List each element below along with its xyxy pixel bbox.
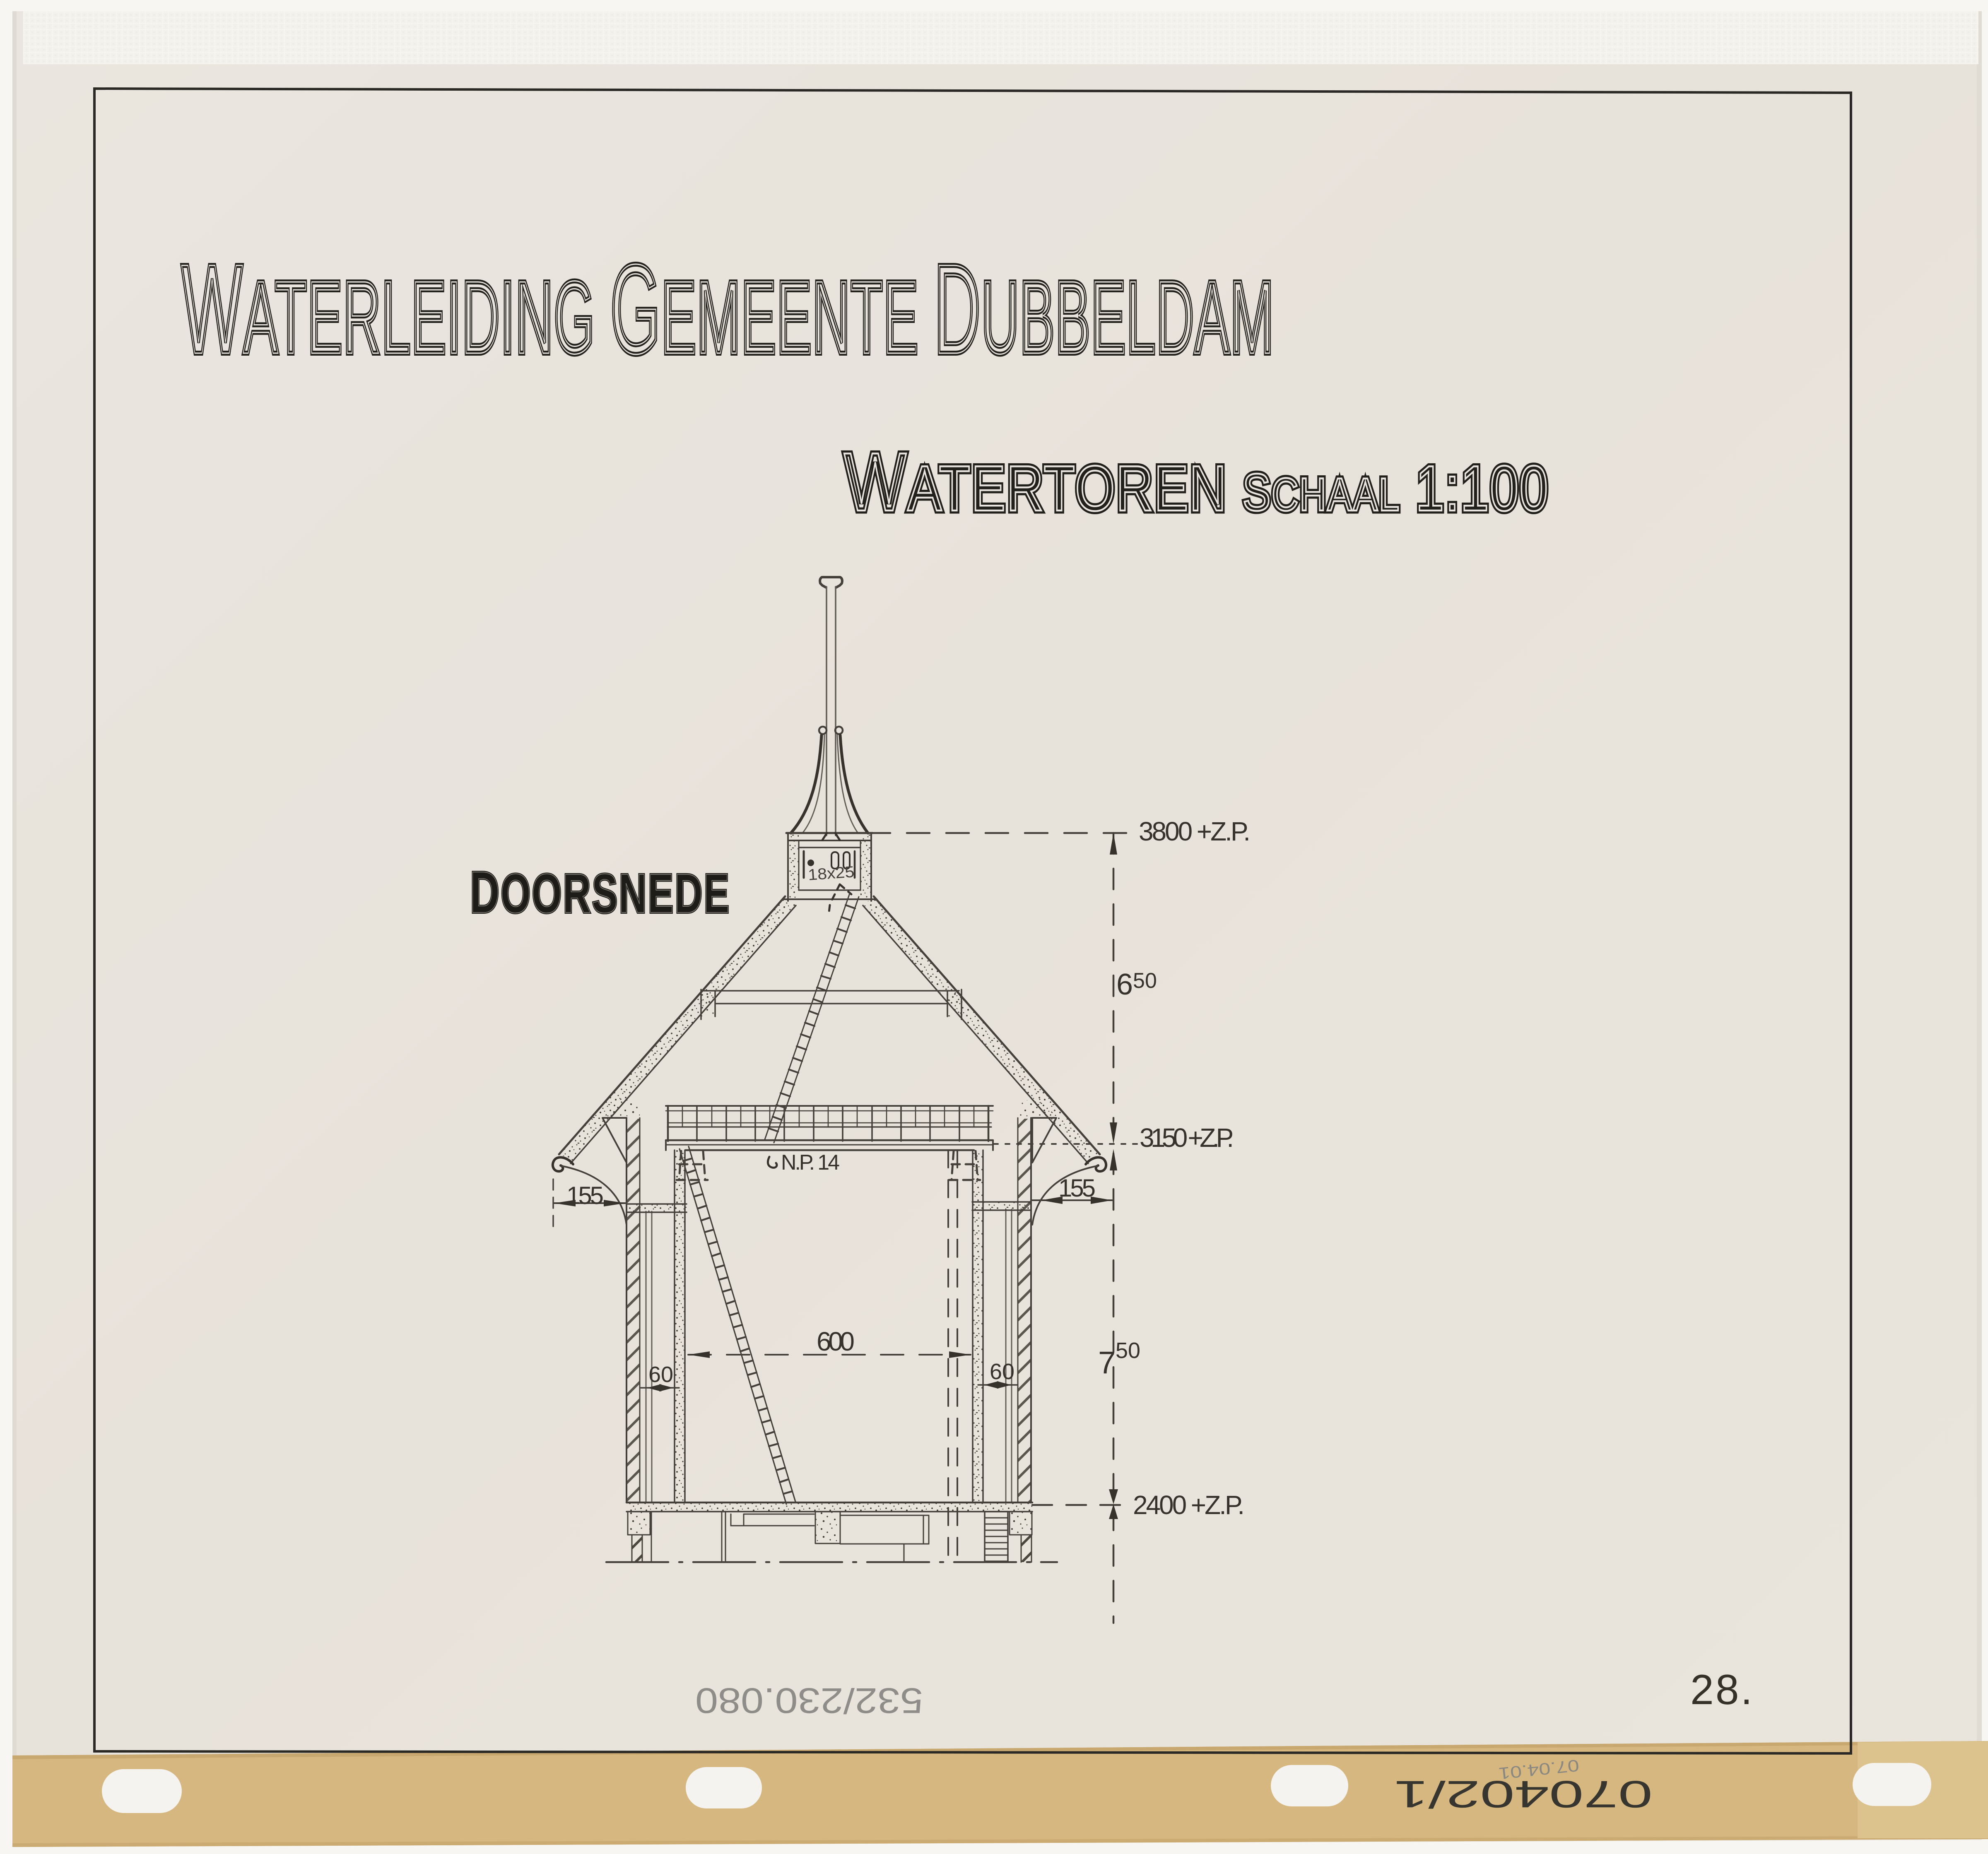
svg-text:3800 +Z.P.: 3800 +Z.P.	[1139, 816, 1251, 846]
svg-text:28.: 28.	[1690, 1666, 1752, 1713]
svg-text:7: 7	[1098, 1345, 1116, 1380]
svg-text:600: 600	[817, 1327, 855, 1356]
svg-text:155: 155	[1058, 1174, 1096, 1202]
svg-text:N.P. 14: N.P. 14	[781, 1151, 840, 1175]
svg-text:2400 +Z.P.: 2400 +Z.P.	[1133, 1490, 1245, 1520]
svg-text:155: 155	[566, 1182, 604, 1209]
svg-text:3150 +Z.P.: 3150 +Z.P.	[1140, 1123, 1234, 1153]
svg-text:18x25: 18x25	[807, 863, 855, 884]
svg-text:50: 50	[1116, 1338, 1140, 1363]
svg-text:DOORSNEDE: DOORSNEDE	[470, 859, 730, 925]
svg-text:532/230.080: 532/230.080	[695, 1681, 923, 1720]
svg-text:60: 60	[648, 1362, 673, 1387]
svg-text:60: 60	[990, 1359, 1014, 1384]
